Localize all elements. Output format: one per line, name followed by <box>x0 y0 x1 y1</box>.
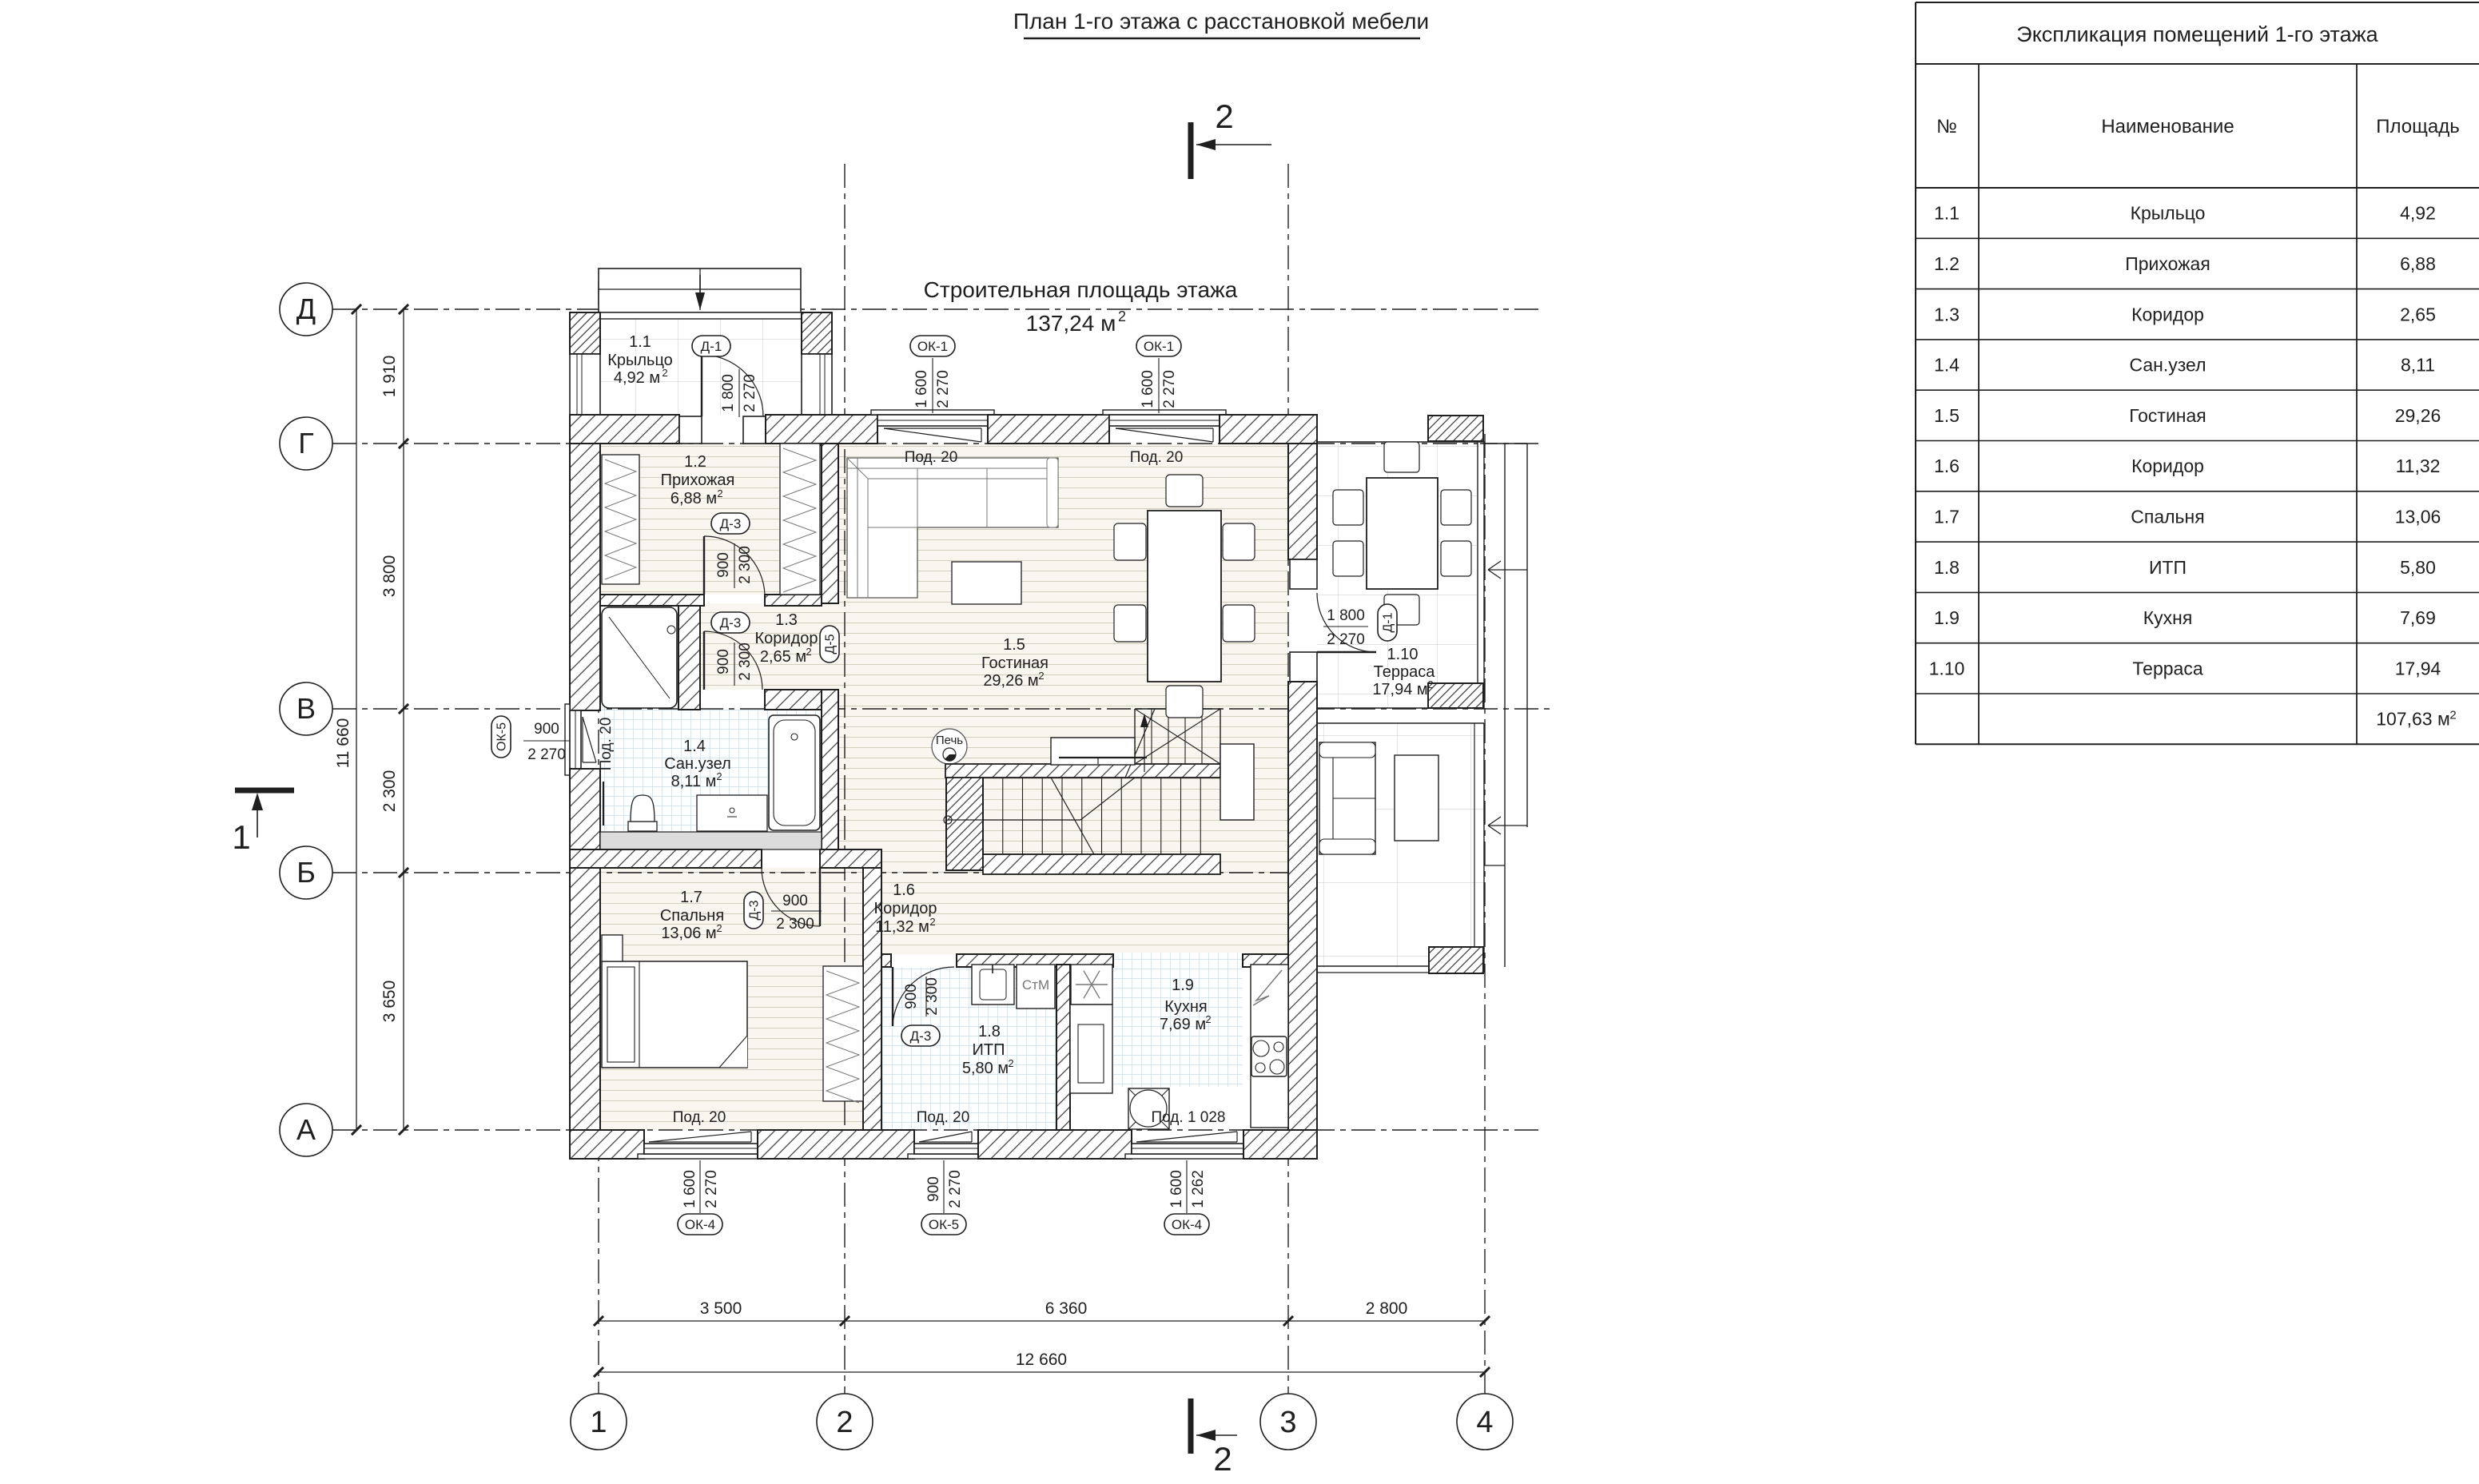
svg-text:Б: Б <box>296 856 316 889</box>
svg-text:1.3: 1.3 <box>1934 304 1960 324</box>
svg-text:Под. 20: Под. 20 <box>917 1109 970 1126</box>
svg-text:ОК-5: ОК-5 <box>929 1217 959 1232</box>
svg-text:29,26 м: 29,26 м <box>983 672 1038 690</box>
svg-text:2 270: 2 270 <box>1327 631 1365 648</box>
svg-text:1.9: 1.9 <box>1934 607 1960 628</box>
svg-text:Д-5: Д-5 <box>823 634 837 654</box>
svg-text:ИТП: ИТП <box>973 1041 1005 1059</box>
svg-text:1.7: 1.7 <box>1934 506 1960 527</box>
svg-text:17,94 м: 17,94 м <box>1372 681 1427 698</box>
svg-text:900: 900 <box>534 721 559 738</box>
svg-text:Кухня: Кухня <box>1164 998 1208 1016</box>
svg-text:1.5: 1.5 <box>1934 405 1960 426</box>
svg-text:4,92 м: 4,92 м <box>614 369 660 387</box>
svg-text:1.5: 1.5 <box>1003 636 1025 654</box>
svg-text:Д-3: Д-3 <box>910 1028 932 1044</box>
svg-text:17,94: 17,94 <box>2395 658 2441 678</box>
svg-text:2 300: 2 300 <box>380 770 399 813</box>
svg-text:2: 2 <box>1205 1013 1211 1025</box>
svg-text:Коридор: Коридор <box>874 900 937 917</box>
svg-text:8,11: 8,11 <box>2401 355 2435 376</box>
svg-text:1.4: 1.4 <box>1934 355 1960 376</box>
svg-text:1 600: 1 600 <box>1168 1170 1185 1208</box>
svg-text:2: 2 <box>1118 308 1126 324</box>
svg-text:Д-3: Д-3 <box>720 516 742 531</box>
svg-text:ОК-1: ОК-1 <box>1144 339 1174 354</box>
svg-text:1.8: 1.8 <box>1934 557 1960 578</box>
svg-text:107,63 м: 107,63 м <box>2376 709 2450 730</box>
svg-text:Спальня: Спальня <box>660 907 724 925</box>
svg-text:1.6: 1.6 <box>893 881 915 899</box>
svg-text:1 600: 1 600 <box>913 370 930 408</box>
svg-text:2,65 м: 2,65 м <box>760 648 806 666</box>
svg-text:2: 2 <box>806 646 811 658</box>
svg-text:Площадь: Площадь <box>2376 116 2459 137</box>
svg-text:900: 900 <box>903 984 920 1009</box>
svg-text:№: № <box>1936 116 1957 137</box>
svg-text:2: 2 <box>1213 1440 1232 1478</box>
svg-text:29,26: 29,26 <box>2395 405 2441 426</box>
svg-text:2: 2 <box>1008 1057 1013 1069</box>
svg-text:Коридор: Коридор <box>755 630 818 647</box>
svg-text:ОК-4: ОК-4 <box>685 1217 715 1232</box>
svg-text:2 300: 2 300 <box>776 916 814 933</box>
svg-text:Под. 1 028: Под. 1 028 <box>1152 1109 1226 1126</box>
svg-text:Строительная площадь этажа: Строительная площадь этажа <box>924 277 1238 302</box>
svg-text:1.8: 1.8 <box>978 1023 1001 1040</box>
svg-text:1 600: 1 600 <box>682 1170 698 1208</box>
svg-text:Гостиная: Гостиная <box>2129 405 2206 426</box>
svg-text:СтМ: СтМ <box>1022 977 1049 993</box>
svg-text:Под. 20: Под. 20 <box>1130 449 1184 466</box>
svg-text:2: 2 <box>1038 670 1044 682</box>
svg-text:1: 1 <box>590 1406 607 1439</box>
svg-text:3 650: 3 650 <box>380 981 399 1023</box>
svg-text:1 800: 1 800 <box>1327 607 1365 624</box>
svg-text:ОК-4: ОК-4 <box>1172 1217 1202 1232</box>
svg-text:6,88 м: 6,88 м <box>670 490 717 507</box>
svg-text:2: 2 <box>2449 709 2456 722</box>
svg-text:900: 900 <box>715 649 732 674</box>
svg-text:900: 900 <box>925 1176 942 1202</box>
svg-text:2: 2 <box>929 916 935 928</box>
svg-text:13,06 м: 13,06 м <box>661 925 716 942</box>
svg-text:Спальня: Спальня <box>2131 506 2204 527</box>
svg-text:5,80 м: 5,80 м <box>962 1060 1009 1077</box>
svg-text:1.6: 1.6 <box>1934 456 1960 476</box>
svg-text:7,69: 7,69 <box>2400 607 2436 628</box>
svg-text:ИТП: ИТП <box>2149 557 2187 578</box>
svg-text:2 300: 2 300 <box>737 643 754 681</box>
svg-text:12 660: 12 660 <box>1016 1351 1067 1369</box>
svg-text:А: А <box>296 1113 316 1146</box>
svg-text:2: 2 <box>1215 97 1233 135</box>
svg-text:2 270: 2 270 <box>703 1170 720 1208</box>
svg-text:2,65: 2,65 <box>2400 304 2436 324</box>
svg-text:Крыльцо: Крыльцо <box>2131 203 2206 224</box>
svg-text:1.2: 1.2 <box>684 453 706 471</box>
svg-text:Наименование: Наименование <box>2101 116 2234 137</box>
svg-text:1.1: 1.1 <box>629 333 651 351</box>
svg-text:137,24 м: 137,24 м <box>1026 311 1116 336</box>
svg-text:1 800: 1 800 <box>720 374 737 412</box>
svg-text:2 270: 2 270 <box>742 374 758 412</box>
svg-text:Д-3: Д-3 <box>747 900 761 920</box>
svg-text:900: 900 <box>782 893 808 909</box>
svg-text:ОК-5: ОК-5 <box>495 722 508 751</box>
svg-text:11,32 м: 11,32 м <box>875 918 929 936</box>
svg-text:Коридор: Коридор <box>2131 304 2204 324</box>
svg-text:Сан.узел: Сан.узел <box>2130 355 2206 376</box>
svg-text:11 660: 11 660 <box>334 718 352 769</box>
svg-text:900: 900 <box>715 552 732 578</box>
svg-text:Экспликация помещений 1-го эта: Экспликация помещений 1-го этажа <box>2016 22 2378 46</box>
svg-text:11,32: 11,32 <box>2396 456 2441 476</box>
svg-text:2 270: 2 270 <box>1161 370 1178 408</box>
svg-text:5,80: 5,80 <box>2400 557 2436 578</box>
svg-text:4: 4 <box>1476 1406 1493 1439</box>
svg-text:1.10: 1.10 <box>1929 658 1965 678</box>
svg-text:1.10: 1.10 <box>1387 646 1419 663</box>
svg-text:2 270: 2 270 <box>947 1170 964 1208</box>
svg-text:Терраса: Терраса <box>1374 663 1436 681</box>
svg-text:1 910: 1 910 <box>380 356 399 398</box>
svg-text:Под. 20: Под. 20 <box>905 449 958 466</box>
svg-text:1 600: 1 600 <box>1140 370 1156 408</box>
svg-text:3 500: 3 500 <box>700 1299 742 1318</box>
svg-text:1 262: 1 262 <box>1190 1170 1207 1208</box>
svg-text:3: 3 <box>1279 1406 1296 1439</box>
svg-text:3 800: 3 800 <box>380 555 399 598</box>
svg-text:1.9: 1.9 <box>1172 977 1194 994</box>
svg-text:4,92: 4,92 <box>2400 203 2436 224</box>
svg-text:2 800: 2 800 <box>1366 1299 1408 1318</box>
svg-text:Д-1: Д-1 <box>701 339 722 354</box>
svg-text:1.3: 1.3 <box>775 611 798 629</box>
svg-text:2: 2 <box>716 922 722 934</box>
svg-text:2: 2 <box>717 487 722 499</box>
svg-text:8,11 м: 8,11 м <box>671 773 717 790</box>
svg-text:6 360: 6 360 <box>1045 1299 1088 1318</box>
svg-text:2: 2 <box>1427 678 1433 690</box>
svg-text:6,88: 6,88 <box>2400 253 2436 274</box>
svg-text:Д-3: Д-3 <box>720 615 742 631</box>
svg-text:2 270: 2 270 <box>935 370 952 408</box>
svg-text:2: 2 <box>836 1406 853 1439</box>
svg-text:1.7: 1.7 <box>680 889 702 906</box>
svg-text:2 270: 2 270 <box>527 746 566 763</box>
svg-text:Д: Д <box>296 292 316 325</box>
svg-text:Под. 20: Под. 20 <box>673 1109 726 1126</box>
svg-text:1.4: 1.4 <box>683 738 706 755</box>
svg-text:Д-1: Д-1 <box>1381 612 1395 632</box>
svg-text:В: В <box>296 692 316 725</box>
svg-text:Кухня: Кухня <box>2143 607 2193 628</box>
svg-text:2 300: 2 300 <box>737 546 754 584</box>
svg-text:1.1: 1.1 <box>1934 203 1960 224</box>
svg-text:7,69 м: 7,69 м <box>1160 1016 1206 1033</box>
svg-text:План 1-го этажа с расстановкой: План 1-го этажа с расстановкой мебели <box>1013 9 1429 34</box>
svg-text:Коридор: Коридор <box>2131 456 2204 476</box>
svg-text:Прихожая: Прихожая <box>661 471 735 489</box>
svg-text:Прихожая: Прихожая <box>2125 253 2210 274</box>
svg-text:1.2: 1.2 <box>1934 253 1960 274</box>
svg-text:1: 1 <box>232 818 250 856</box>
svg-text:2: 2 <box>716 770 722 782</box>
svg-text:Г: Г <box>298 427 314 460</box>
svg-text:ОК-1: ОК-1 <box>917 339 948 354</box>
svg-text:Терраса: Терраса <box>2132 658 2202 678</box>
svg-text:13,06: 13,06 <box>2395 506 2441 527</box>
svg-text:2: 2 <box>662 367 667 379</box>
svg-text:Под. 20: Под. 20 <box>598 718 615 771</box>
svg-text:Печь: Печь <box>936 734 963 747</box>
